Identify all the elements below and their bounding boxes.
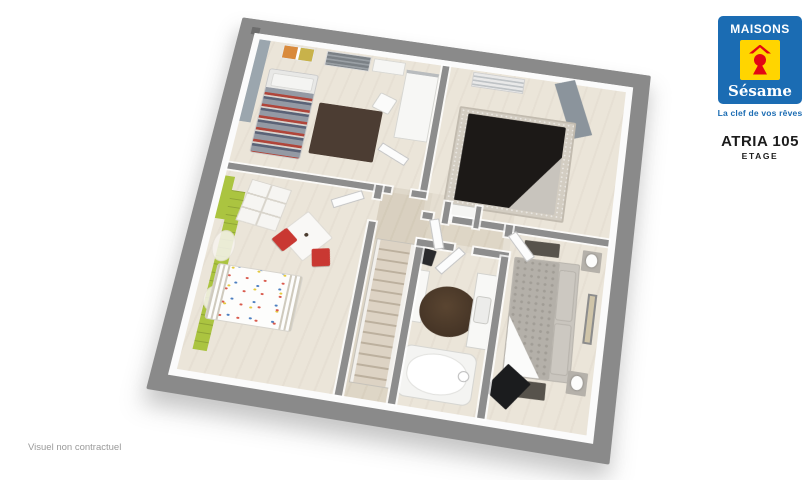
- brand-name-top: MAISONS: [730, 23, 790, 35]
- bathroom-sink-bowl: [473, 295, 492, 324]
- master-lamp-1: [585, 254, 597, 268]
- brand-name-script: Sésame: [728, 84, 792, 99]
- master-nightstand-1: [581, 250, 602, 273]
- floorplan-floor: [177, 39, 626, 435]
- page: MAISONS Sésame La clef de vos rêves ATRI…: [0, 0, 811, 480]
- children-red-chair-2: [311, 248, 329, 266]
- master-bed-pillow-1: [555, 270, 577, 322]
- floorplan-outer-wall-frame: [146, 17, 651, 464]
- brand-logo: MAISONS Sésame: [718, 16, 802, 104]
- master-nightstand-2: [566, 371, 588, 396]
- floorplan-3d-view: [146, 17, 651, 464]
- roof-icon: [749, 45, 771, 54]
- children-table-decor: [304, 233, 310, 238]
- disclaimer-text: Visuel non contractuel: [28, 442, 121, 453]
- brand-block: MAISONS Sésame La clef de vos rêves ATRI…: [712, 16, 808, 161]
- master-bed-pillow-2: [550, 322, 572, 376]
- floorplan-inner-wall-band: [168, 33, 633, 444]
- bathtub-faucet: [457, 370, 470, 383]
- plan-model-title: ATRIA 105: [712, 133, 808, 150]
- brand-yellow-square: [740, 40, 780, 80]
- master-lamp-2: [570, 375, 583, 391]
- master-bed: [502, 256, 580, 383]
- plan-level-label: ETAGE: [712, 151, 808, 161]
- bedroom1-rug: [309, 103, 383, 163]
- brand-tagline: La clef de vos rêves: [712, 108, 808, 118]
